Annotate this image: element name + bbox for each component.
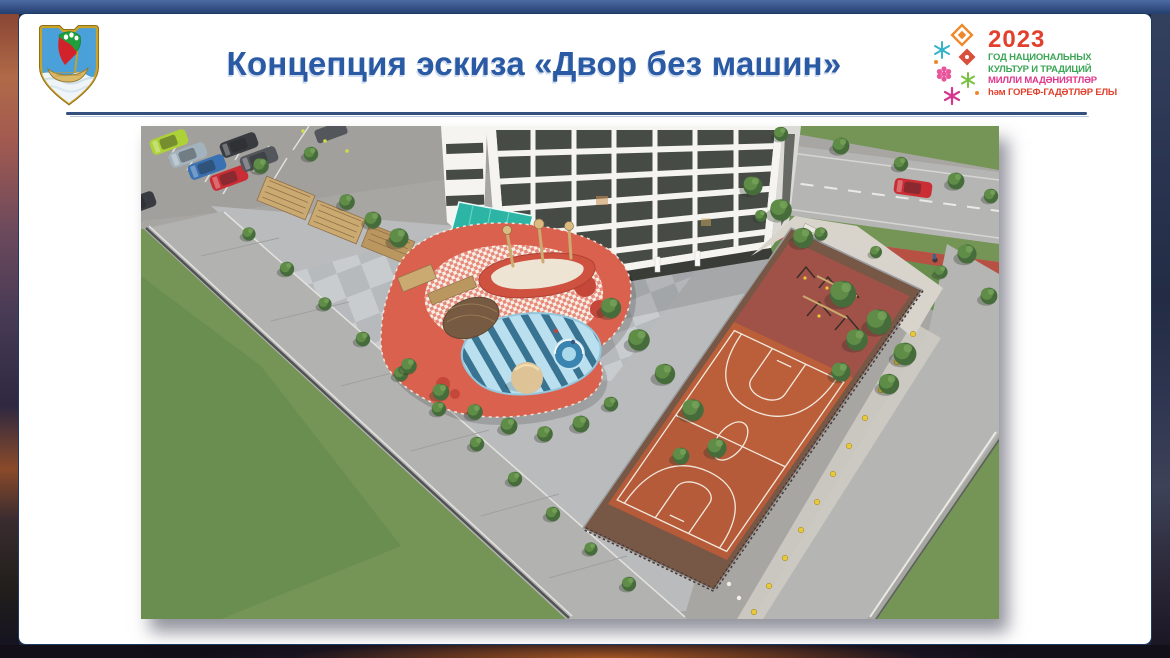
background-photo-left — [0, 14, 19, 646]
color-grade-overlay — [141, 126, 999, 619]
folk-ornament-icon — [931, 22, 985, 108]
city-coat-of-arms-icon — [33, 23, 105, 107]
background-photo-right — [1151, 14, 1170, 646]
year-logo-text: 2023 ГОД НАЦИОНАЛЬНЫХ КУЛЬТУР И ТРАДИЦИЙ… — [988, 22, 1117, 112]
header-divider — [66, 112, 1087, 115]
background-photo-bottom — [0, 645, 1170, 658]
main-illustration-frame — [141, 126, 999, 619]
main-illustration — [141, 126, 999, 619]
year-label: 2023 — [988, 28, 1117, 52]
year-logo-line-2: КУЛЬТУР И ТРАДИЦИЙ — [988, 64, 1117, 76]
year-logo-line-3: МИЛЛИ МАДӘНИЯТЛӘР — [988, 75, 1117, 87]
year-logo-line-4: һәм ГОРЕФ-ГАДӘТЛӘР ЕЛЫ — [988, 87, 1117, 99]
year-logo-line-1: ГОД НАЦИОНАЛЬНЫХ — [988, 52, 1117, 64]
slide-root: { "background": { "top_bar_color": "#395… — [0, 0, 1170, 658]
year-2023-logo: 2023 ГОД НАЦИОНАЛЬНЫХ КУЛЬТУР И ТРАДИЦИЙ… — [931, 22, 1127, 112]
background-photo-top — [0, 0, 1170, 14]
page-title: Концепция эскиза «Двор без машин» — [149, 45, 919, 83]
slide-card: Концепция эскиза «Двор без машин» — [18, 13, 1152, 645]
